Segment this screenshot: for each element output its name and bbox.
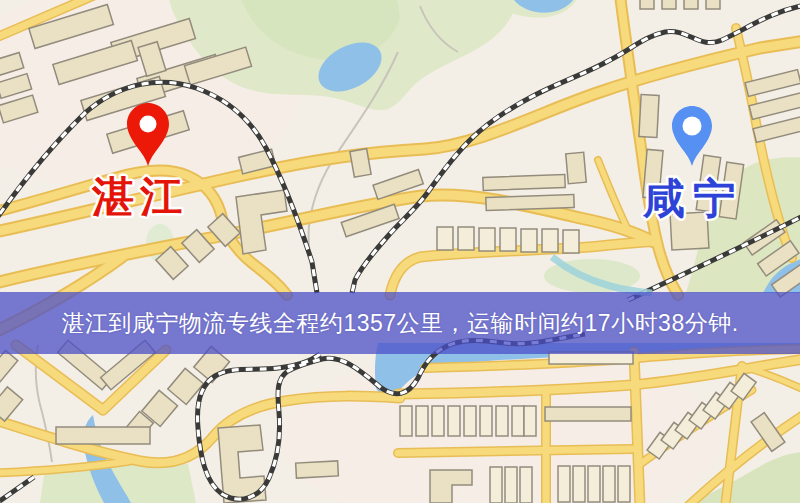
map-canvas: 湛江 咸宁: [0, 0, 800, 503]
origin-label: 湛江: [91, 173, 188, 220]
route-info-text: 湛江到咸宁物流专线全程约1357公里，运输时间约17小时38分钟.: [61, 308, 738, 339]
route-info-banner: 湛江到咸宁物流专线全程约1357公里，运输时间约17小时38分钟.: [0, 292, 800, 354]
logistics-route-map: 湛江 咸宁 湛江到咸宁物流专线全程约1357公里，运输时间约17小时38分钟.: [0, 0, 800, 503]
destination-label: 咸宁: [642, 175, 743, 222]
